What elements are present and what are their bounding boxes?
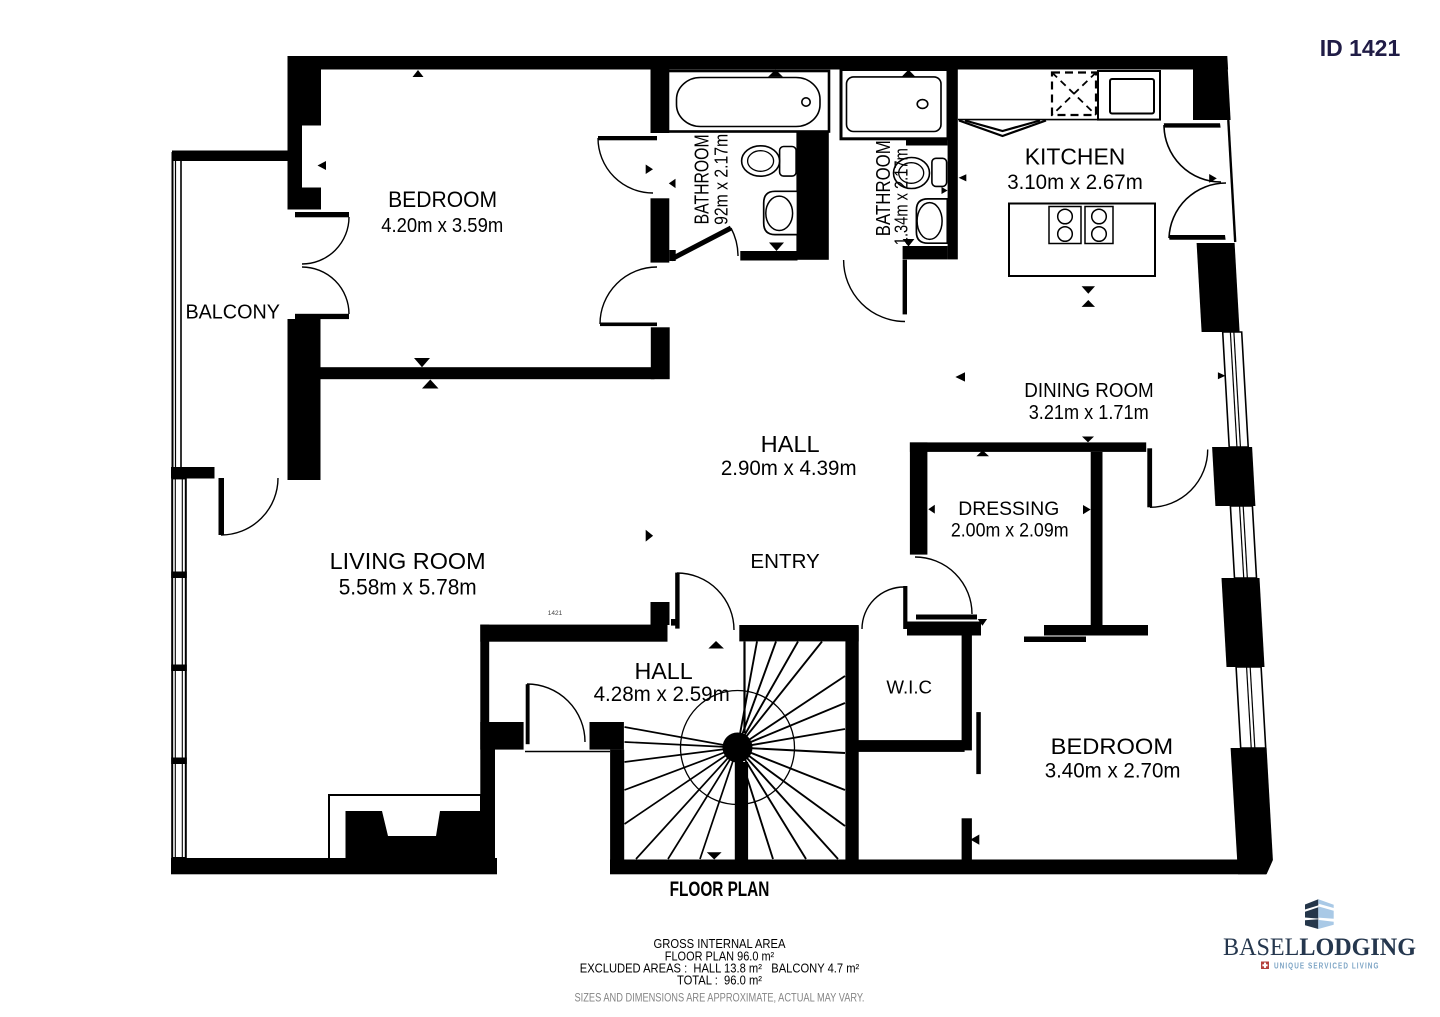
svg-text:DRESSING: DRESSING [958, 498, 1059, 520]
svg-text:TOTAL : 96.0 m²: TOTAL : 96.0 m² [677, 973, 763, 988]
svg-text:3.10m x 2.67m: 3.10m x 2.67m [1007, 170, 1143, 194]
svg-text:KITCHEN: KITCHEN [1025, 144, 1126, 170]
svg-text:3.40m x 2.70m: 3.40m x 2.70m [1045, 760, 1181, 783]
svg-text:DINING ROOM: DINING ROOM [1024, 379, 1153, 402]
svg-text:ID 1421: ID 1421 [1320, 35, 1401, 61]
svg-text:2.00m x 2.09m: 2.00m x 2.09m [951, 520, 1069, 542]
svg-text:BALCONY: BALCONY [185, 302, 280, 324]
svg-text:4.20m x 3.59m: 4.20m x 3.59m [381, 214, 503, 237]
svg-text:3.21m x 1.71m: 3.21m x 1.71m [1029, 401, 1149, 424]
svg-text:5.58m x 5.78m: 5.58m x 5.78m [339, 575, 477, 600]
svg-text:92m x 2.17m: 92m x 2.17m [711, 134, 732, 225]
svg-text:1421: 1421 [548, 610, 563, 617]
svg-text:ENTRY: ENTRY [750, 550, 820, 573]
svg-text:W.I.C: W.I.C [886, 677, 932, 698]
svg-text:BEDROOM: BEDROOM [1051, 734, 1173, 759]
svg-text:HALL: HALL [634, 658, 692, 684]
svg-text:UNIQUE SERVICED LIVING: UNIQUE SERVICED LIVING [1274, 962, 1380, 971]
svg-text:4.28m x 2.59m: 4.28m x 2.59m [594, 682, 730, 706]
svg-text:SIZES AND DIMENSIONS ARE APPRO: SIZES AND DIMENSIONS ARE APPROXIMATE, AC… [575, 991, 865, 1005]
svg-text:FLOOR PLAN: FLOOR PLAN [670, 878, 770, 901]
svg-text:BASELLODGING: BASELLODGING [1223, 934, 1416, 961]
svg-text:LIVING ROOM: LIVING ROOM [330, 548, 486, 574]
svg-text:2.90m x 4.39m: 2.90m x 4.39m [721, 456, 857, 480]
svg-text:HALL: HALL [761, 431, 820, 457]
svg-text:BEDROOM: BEDROOM [388, 187, 497, 212]
svg-text:1.34m x 2.17m: 1.34m x 2.17m [891, 148, 912, 245]
